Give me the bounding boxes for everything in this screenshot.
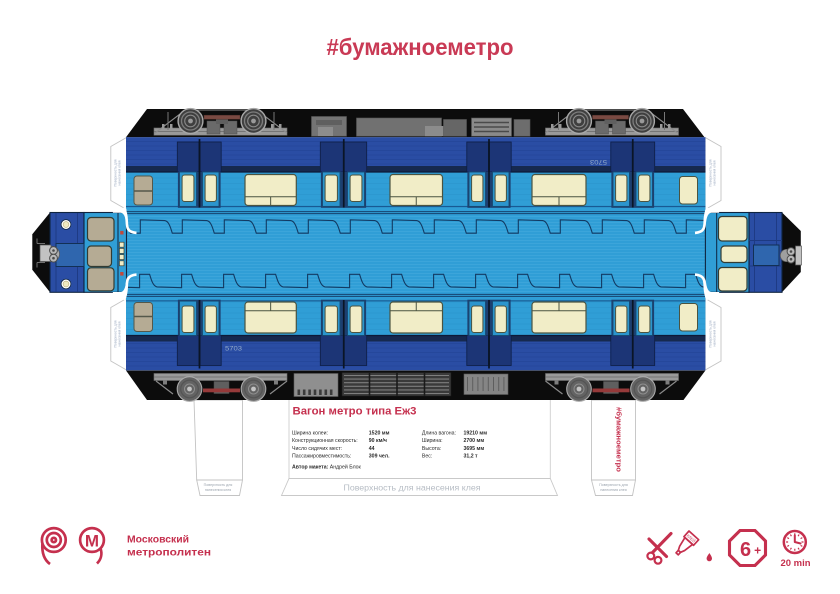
- svg-text:#бумажноеметро: #бумажноеметро: [327, 34, 514, 60]
- svg-text:Высота:: Высота:: [422, 446, 441, 452]
- svg-text:Поверхность длянанесения клея: Поверхность длянанесения клея: [114, 159, 122, 186]
- svg-text:90 км/ч: 90 км/ч: [369, 438, 387, 444]
- svg-text:Длина вагона:: Длина вагона:: [422, 431, 456, 437]
- svg-text:Ширина колеи:: Ширина колеи:: [292, 431, 328, 437]
- svg-text:31,2 т: 31,2 т: [464, 453, 479, 459]
- svg-text:метрополитен: метрополитен: [127, 548, 211, 559]
- svg-text:1520 мм: 1520 мм: [369, 431, 390, 437]
- svg-text:М: М: [85, 532, 99, 551]
- svg-text:Поверхность длянанесения клея: Поверхность длянанесения клея: [114, 320, 122, 347]
- svg-text:3695 мм: 3695 мм: [464, 446, 485, 452]
- svg-text:Вес:: Вес:: [422, 453, 432, 459]
- svg-text:+: +: [754, 544, 761, 558]
- svg-text:20 min: 20 min: [781, 558, 811, 569]
- svg-text:нанесения клея: нанесения клея: [600, 488, 626, 492]
- svg-text:нанесения клея: нанесения клея: [205, 488, 231, 492]
- svg-text:Автор макета: Андрей Блок: Автор макета: Андрей Блок: [292, 463, 362, 470]
- svg-text:#бумажноеметро: #бумажноеметро: [615, 407, 624, 472]
- svg-text:Поверхность длянанесения клея: Поверхность длянанесения клея: [709, 320, 717, 347]
- svg-text:5703: 5703: [225, 346, 243, 353]
- svg-text:309 чел.: 309 чел.: [369, 453, 390, 459]
- svg-text:Ширина:: Ширина:: [422, 438, 443, 444]
- svg-text:6: 6: [740, 539, 751, 561]
- svg-text:44: 44: [369, 446, 375, 452]
- svg-text:Поверхность длянанесения клея: Поверхность длянанесения клея: [709, 159, 717, 186]
- svg-text:Число сидячих мест:: Число сидячих мест:: [292, 446, 342, 452]
- svg-text:Поверхность для нанесения клея: Поверхность для нанесения клея: [344, 484, 481, 493]
- svg-text:5703: 5703: [589, 158, 607, 165]
- svg-text:Пассажировместимость:: Пассажировместимость:: [292, 453, 351, 459]
- svg-text:Поверхность для: Поверхность для: [599, 483, 628, 487]
- svg-text:2700 мм: 2700 мм: [464, 438, 485, 444]
- svg-text:Поверхность для: Поверхность для: [204, 483, 233, 487]
- svg-text:Конструкционная скорость:: Конструкционная скорость:: [292, 438, 358, 444]
- svg-text:Московский: Московский: [127, 535, 189, 546]
- svg-text:Вагон метро типа Еж3: Вагон метро типа Еж3: [293, 406, 417, 418]
- svg-text:19210 мм: 19210 мм: [464, 431, 488, 437]
